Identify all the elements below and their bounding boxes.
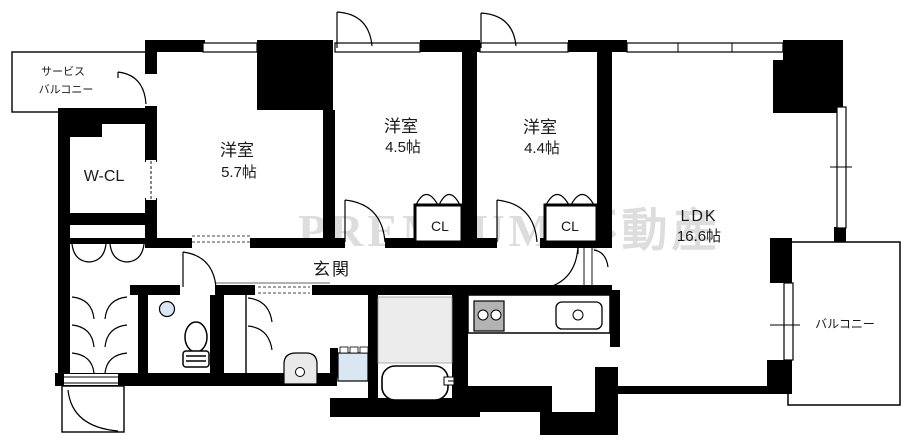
window-ldk-balcony: [784, 283, 793, 360]
window-bedroom45: [335, 43, 420, 52]
closet-a-folding-door: [416, 195, 460, 206]
stove-burner-right: [491, 310, 501, 320]
window-bedroom57: [203, 43, 257, 52]
service-balcony-area: [12, 52, 148, 112]
entrance-label: 玄関: [313, 260, 351, 279]
bedroom44-name: 洋室: [523, 118, 557, 137]
balcony-label: バルコニー: [815, 317, 875, 331]
floor-plan: PREMIUM 不動産: [0, 0, 914, 446]
entrance-step-dashed: [258, 287, 310, 293]
window-ldk-top: [627, 43, 783, 52]
closet-b-label: CL: [561, 218, 579, 234]
shoe-closet-door-3: [72, 353, 127, 373]
bathroom-floor: [378, 297, 452, 363]
hall-closet-door-1: [72, 244, 106, 262]
walk-in-closet-label: W-CL: [84, 168, 125, 185]
closet-a-label: CL: [431, 218, 449, 234]
toilet-bowl: [185, 322, 207, 352]
pillar-top-center: [257, 40, 333, 110]
shoe-closet-door-1: [72, 297, 127, 319]
floor-plan-drawing: PREMIUM 不動産: [0, 0, 914, 446]
wc-hand-basin: [160, 302, 175, 317]
ldk-name: LDK: [680, 208, 717, 225]
toilet-tank: [183, 351, 209, 367]
hall-closet-door-2: [110, 244, 144, 262]
linen-closet-doors: [248, 298, 272, 350]
closet-b-folding-door: [546, 195, 594, 206]
bedroom57-sliding-sill: [192, 236, 250, 242]
ldk-size: 16.6帖: [677, 228, 721, 245]
bedroom44-size: 4.4帖: [524, 140, 560, 157]
window-bedroom44: [480, 43, 568, 52]
pillar-top-right: [773, 60, 843, 113]
bedroom45-size: 4.5帖: [385, 139, 421, 156]
stove-burner-left: [478, 310, 488, 320]
watermark-text: PREMIUM 不動産: [298, 205, 721, 256]
vanity-basin: [296, 368, 305, 377]
shoe-closet-door-2: [72, 325, 127, 347]
bathtub: [382, 366, 448, 400]
washing-machine-pan: [338, 353, 368, 381]
bedroom57-size: 5.7帖: [221, 164, 257, 181]
service-balcony-label-2: バルコニー: [39, 83, 94, 96]
bedroom45-name: 洋室: [384, 117, 418, 136]
washer-taps: [340, 347, 368, 353]
service-balcony-label-1: サービス: [41, 65, 85, 78]
washroom-door: [183, 252, 216, 287]
sink-drain: [573, 310, 583, 320]
bedroom57-name: 洋室: [220, 141, 254, 160]
